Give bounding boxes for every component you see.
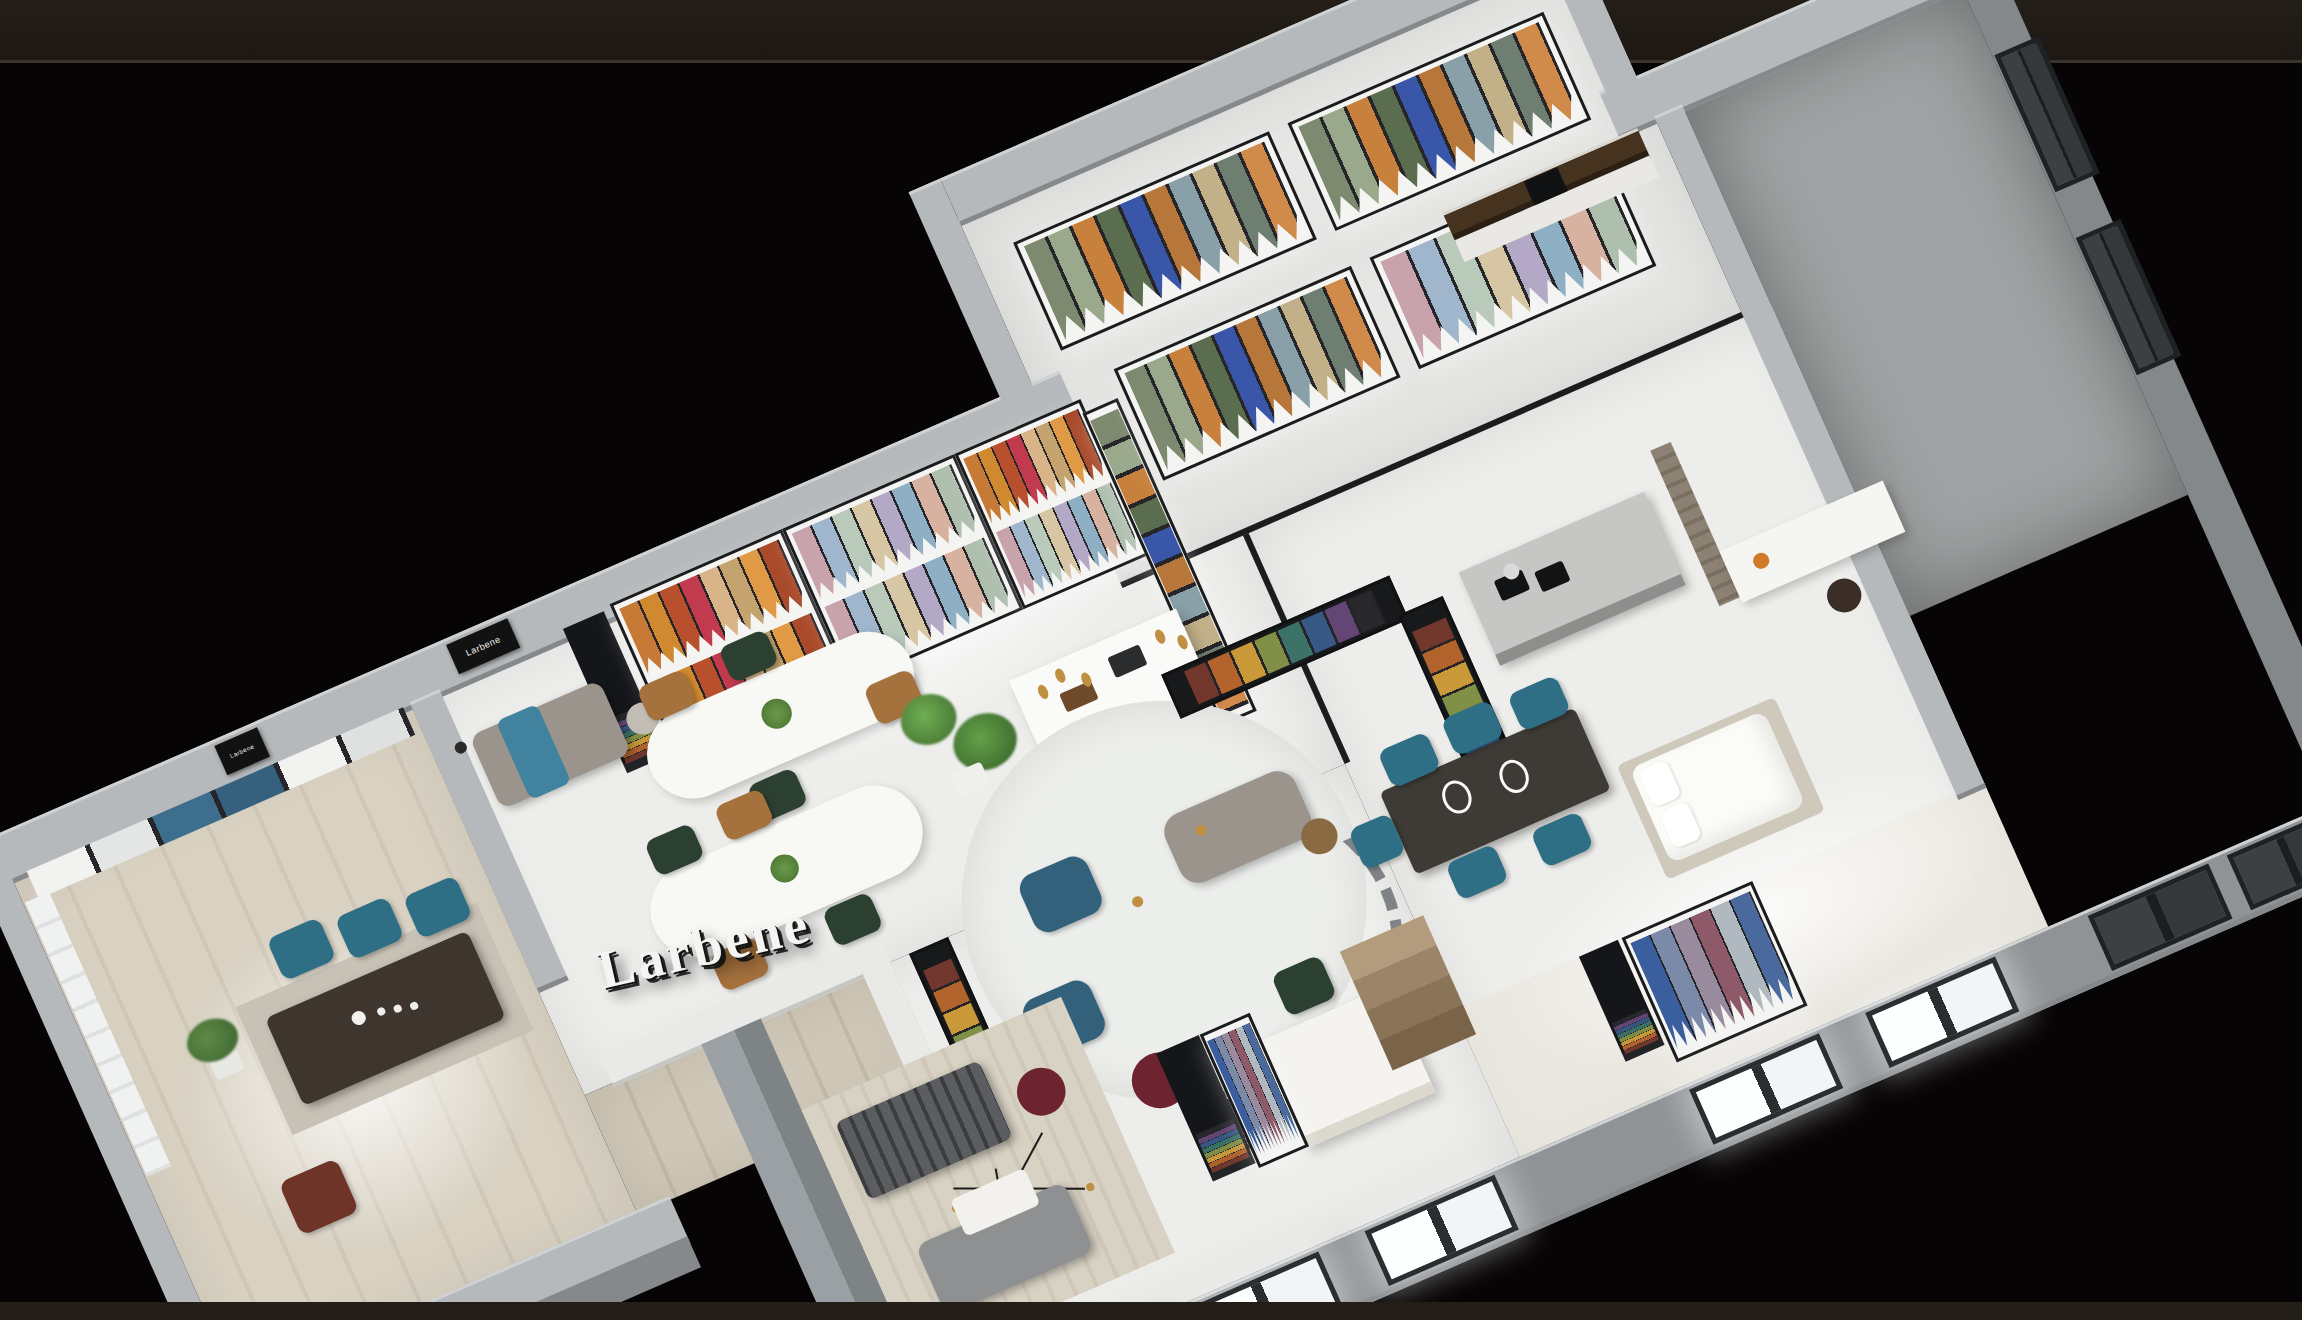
showroom-render: Larbene Larbene: [0, 0, 2302, 1320]
tea-room-frame-text: Larbene: [229, 743, 255, 759]
ceiling-strip-bottom: [0, 1302, 2302, 1320]
alcove-plaque-text: Larbene: [464, 634, 502, 658]
floorplan-scene: Larbene Larbene: [11, 0, 2302, 1320]
